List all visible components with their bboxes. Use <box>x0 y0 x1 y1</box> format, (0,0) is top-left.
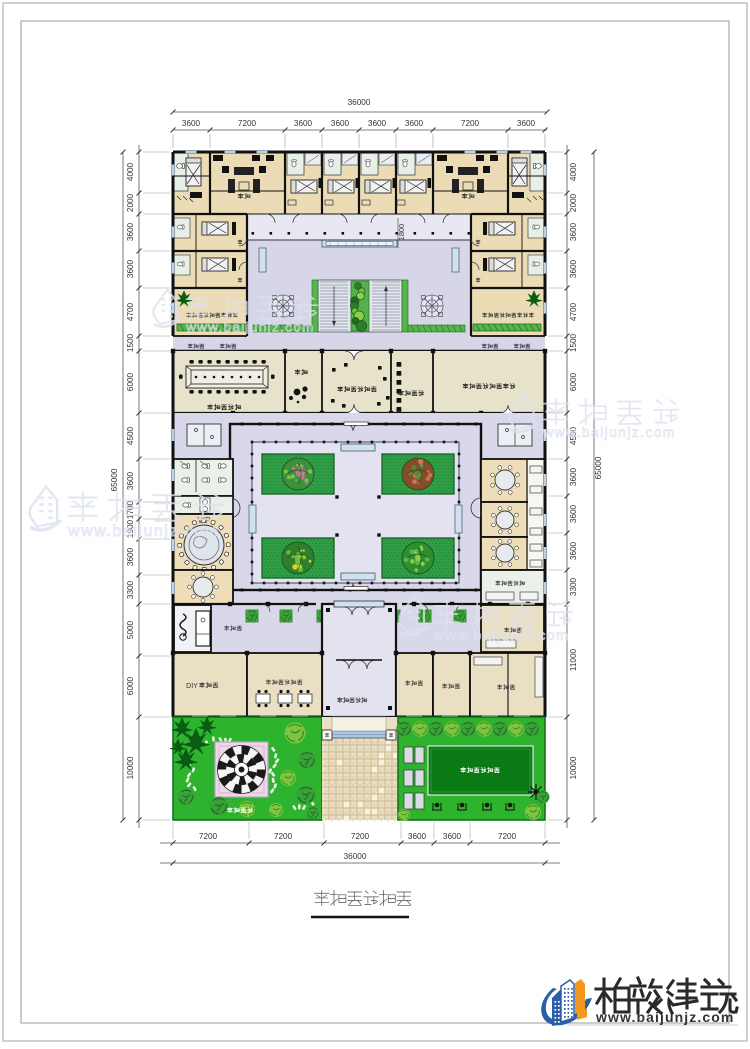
svg-text:2000: 2000 <box>126 193 135 212</box>
svg-text:65000: 65000 <box>594 456 603 479</box>
svg-text:7200: 7200 <box>498 832 517 841</box>
svg-text:6000: 6000 <box>126 676 135 695</box>
svg-text:4000: 4000 <box>126 162 135 181</box>
svg-text:4700: 4700 <box>569 302 578 321</box>
svg-text:3600: 3600 <box>569 222 578 241</box>
svg-text:4500: 4500 <box>126 426 135 445</box>
svg-text:7200: 7200 <box>199 832 218 841</box>
svg-text:3600: 3600 <box>405 119 424 128</box>
svg-text:3600: 3600 <box>126 259 135 278</box>
svg-text:3600: 3600 <box>517 119 536 128</box>
svg-text:1800: 1800 <box>397 224 406 241</box>
svg-text:DIY: DIY <box>186 683 198 690</box>
svg-text:3600: 3600 <box>569 541 578 560</box>
svg-text:5000: 5000 <box>126 620 135 639</box>
svg-text:65000: 65000 <box>110 468 119 491</box>
svg-text:www.baijunjz.com: www.baijunjz.com <box>542 425 676 440</box>
svg-text:www.baijunjz.com: www.baijunjz.com <box>185 320 314 335</box>
svg-text:3600: 3600 <box>126 547 135 566</box>
svg-text:10000: 10000 <box>569 756 578 779</box>
svg-text:4000: 4000 <box>569 162 578 181</box>
svg-text:7200: 7200 <box>461 119 480 128</box>
svg-text:3300: 3300 <box>126 580 135 599</box>
svg-text:2000: 2000 <box>569 193 578 212</box>
svg-text:1500: 1500 <box>126 333 135 352</box>
svg-text:3600: 3600 <box>126 222 135 241</box>
svg-text:7200: 7200 <box>351 832 370 841</box>
svg-text:3600: 3600 <box>569 504 578 523</box>
svg-text:11000: 11000 <box>569 648 578 671</box>
svg-text:7200: 7200 <box>238 119 257 128</box>
svg-text:10000: 10000 <box>126 756 135 779</box>
svg-text:4700: 4700 <box>126 302 135 321</box>
svg-text:6000: 6000 <box>126 372 135 391</box>
svg-text:www.baijunjz.com: www.baijunjz.com <box>595 1009 734 1025</box>
svg-text:3600: 3600 <box>331 119 350 128</box>
svg-text:6000: 6000 <box>569 372 578 391</box>
svg-text:3600: 3600 <box>368 119 387 128</box>
svg-text:www.baijunjz.com: www.baijunjz.com <box>67 523 219 540</box>
svg-text:7200: 7200 <box>274 832 293 841</box>
svg-text:3600: 3600 <box>126 471 135 490</box>
svg-text:3600: 3600 <box>443 832 462 841</box>
svg-text:3600: 3600 <box>569 259 578 278</box>
svg-text:3600: 3600 <box>182 119 201 128</box>
svg-text:3600: 3600 <box>408 832 427 841</box>
svg-text:3600: 3600 <box>569 467 578 486</box>
svg-text:36000: 36000 <box>344 852 367 861</box>
svg-text:3300: 3300 <box>569 577 578 596</box>
svg-text:3600: 3600 <box>294 119 313 128</box>
svg-text:1500: 1500 <box>569 333 578 352</box>
svg-text:www.baijunjz.com: www.baijunjz.com <box>433 627 569 643</box>
svg-text:36000: 36000 <box>348 98 371 107</box>
